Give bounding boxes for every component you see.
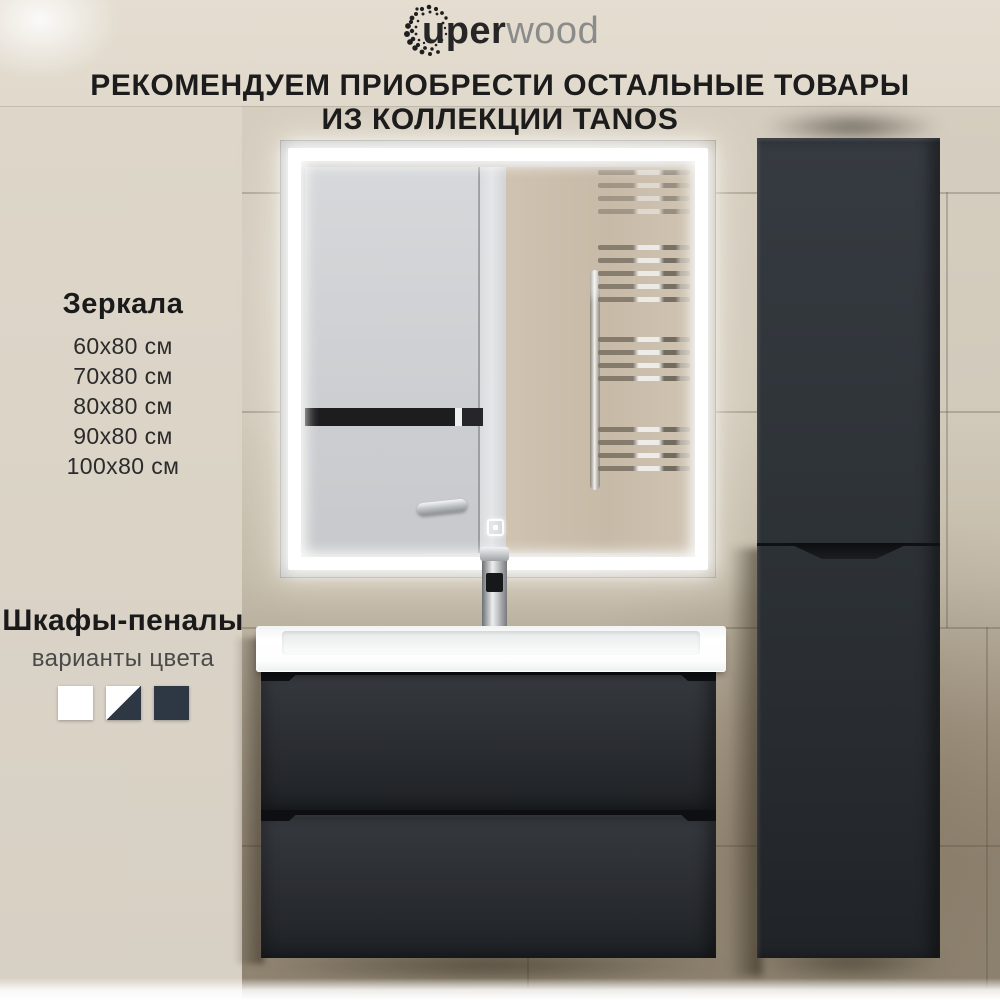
tile-grout-line	[946, 192, 948, 628]
drawer-seam	[261, 810, 716, 815]
color-swatches	[0, 686, 246, 720]
cabinets-section: Шкафы-пеналы варианты цвета	[0, 604, 246, 720]
heading-line1: РЕКОМЕНДУЕМ ПРИОБРЕСТИ ОСТАЛЬНЫЕ ТОВАРЫ	[0, 69, 1000, 103]
swatch-white	[58, 686, 93, 720]
heading-line2: ИЗ КОЛЛЕКЦИИ TANOS	[0, 103, 1000, 137]
logo-text-bold: uper	[422, 10, 506, 52]
logo-text: uperwood	[422, 10, 599, 53]
product-card: uperwood РЕКОМЕНДУЕМ ПРИОБРЕСТИ ОСТАЛЬНЫ…	[0, 0, 1000, 1000]
led-mirror	[280, 140, 716, 578]
swatch-graphite	[154, 686, 189, 720]
mirrors-section: Зеркала 60x80 см 70x80 см 80x80 см 90x80…	[0, 288, 246, 481]
tile-grout-line	[986, 627, 988, 987]
brand-logo: uperwood	[402, 2, 642, 62]
mirror-size-item: 100x80 см	[0, 451, 246, 481]
washbasin-bowl	[282, 631, 700, 655]
washbasin	[256, 626, 726, 672]
bottom-white-fade	[0, 978, 1000, 1000]
mirror-size-item: 90x80 см	[0, 421, 246, 451]
mirror-size-item: 60x80 см	[0, 331, 246, 361]
vanity-cabinet	[261, 670, 716, 958]
vanity-drawer-top	[261, 670, 716, 810]
mirrors-size-list: 60x80 см 70x80 см 80x80 см 90x80 см 100x…	[0, 331, 246, 481]
cabinets-title: Шкафы-пеналы	[0, 604, 246, 638]
faucet-spout-opening	[486, 573, 503, 592]
corner-light	[0, 0, 120, 80]
mirrors-title: Зеркала	[0, 288, 246, 321]
tall-cabinet	[757, 138, 940, 958]
vanity-drawer-bottom	[261, 815, 716, 958]
tall-cabinet-handle-recess	[788, 543, 910, 559]
logo-text-light: wood	[506, 10, 599, 52]
swatch-white-graphite	[106, 686, 141, 720]
faucet	[482, 547, 507, 632]
mirror-size-item: 80x80 см	[0, 391, 246, 421]
led-light-ring	[288, 148, 708, 570]
recommendation-heading: РЕКОМЕНДУЕМ ПРИОБРЕСТИ ОСТАЛЬНЫЕ ТОВАРЫ …	[0, 69, 1000, 137]
light-wall-panel	[0, 0, 242, 1000]
mirror-size-item: 70x80 см	[0, 361, 246, 391]
cabinets-subtitle: варианты цвета	[0, 645, 246, 673]
